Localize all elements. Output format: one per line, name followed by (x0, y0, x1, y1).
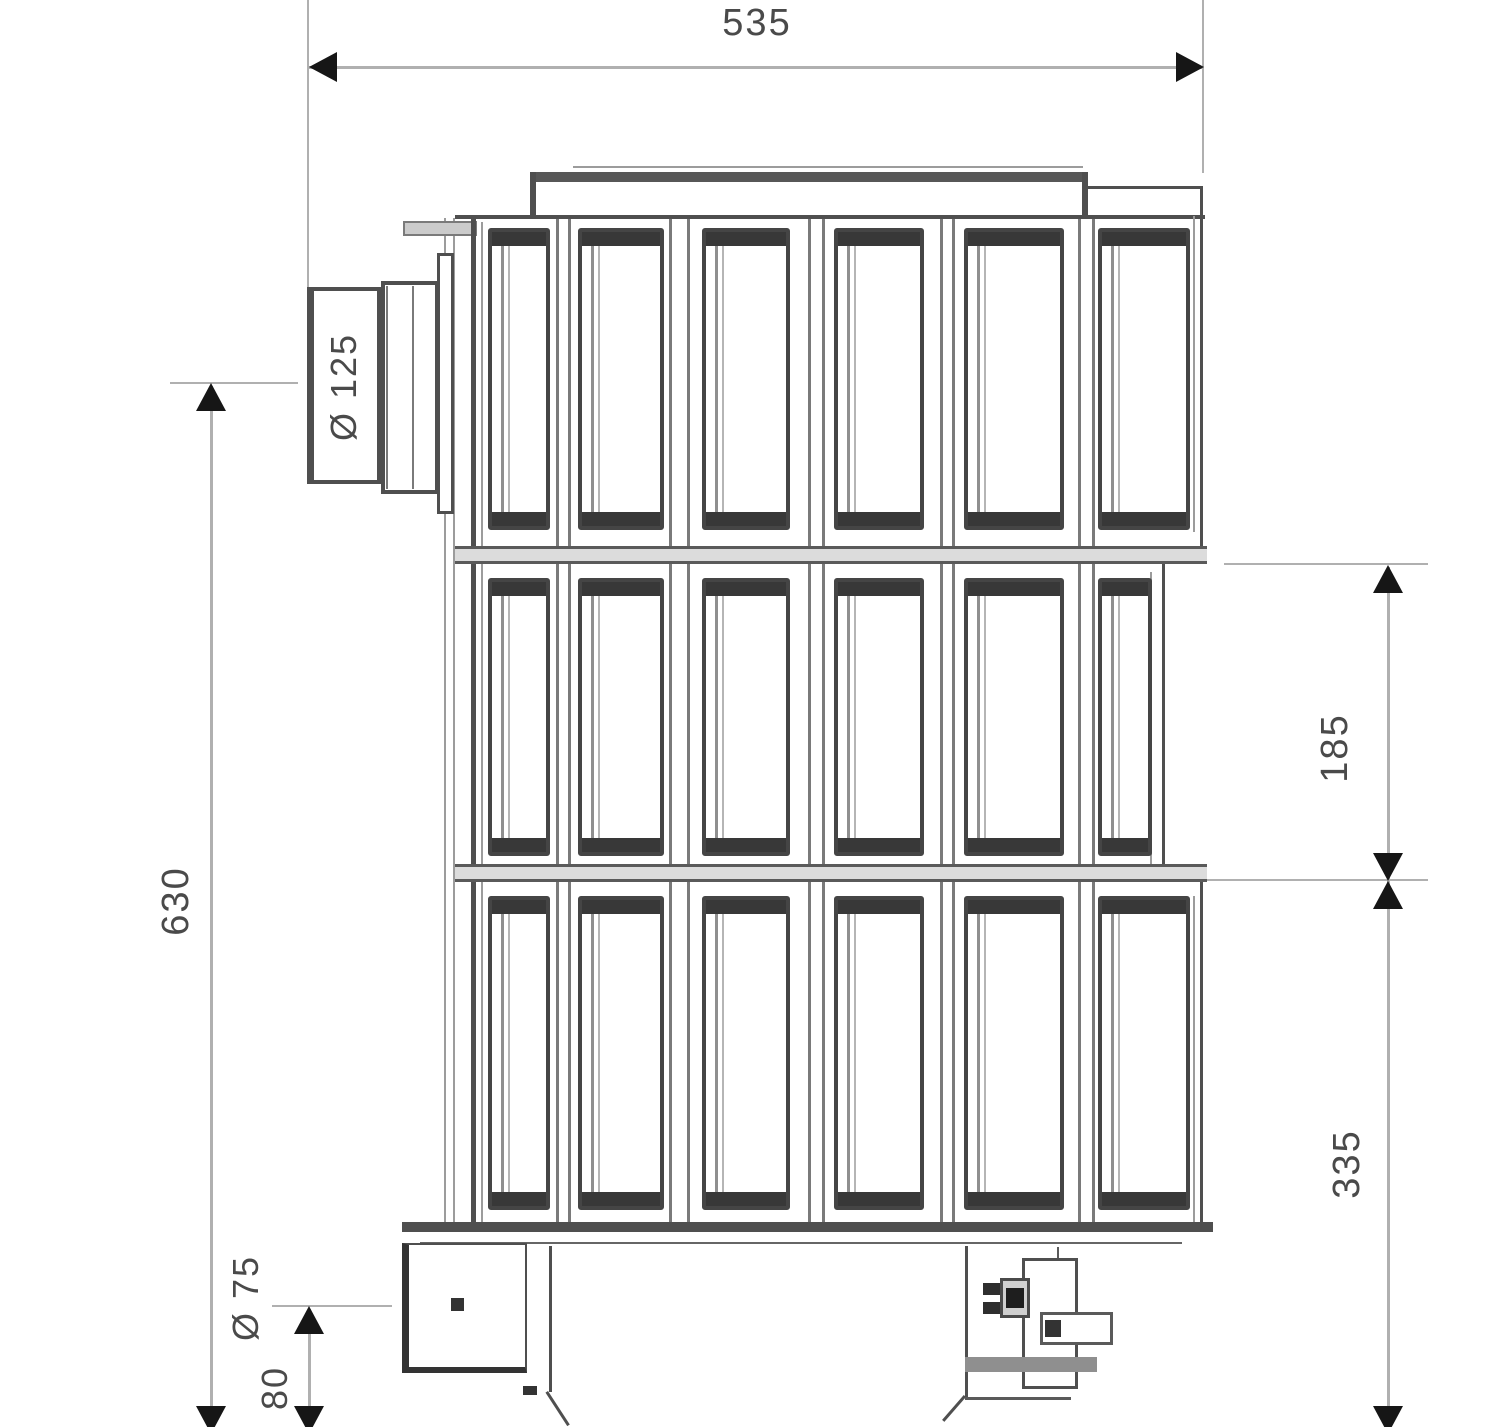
row-separator-flange-1 (455, 546, 1207, 564)
panel-cap (1102, 900, 1186, 914)
panel-rib-stripe (508, 596, 510, 838)
heat-exchanger-panel-r2c6 (1098, 578, 1152, 856)
panel-rib-stripe (854, 596, 856, 838)
panel-cap (492, 838, 546, 852)
column-divider-line (1078, 219, 1081, 1222)
column-divider-line (808, 219, 811, 1222)
panel-cap (1102, 582, 1148, 596)
heat-exchanger-panel-r3c2 (578, 896, 664, 1210)
panel-rib-stripe (598, 246, 600, 512)
panel-rib-stripe (847, 246, 850, 512)
panel-rib-stripe (1118, 914, 1120, 1192)
panel-cap (582, 838, 660, 852)
panel-cap (492, 582, 546, 596)
panel-cap (1102, 232, 1186, 246)
panel-rib-stripe (854, 914, 856, 1192)
panel-rib-stripe (977, 596, 980, 838)
heat-exchanger-panel-r1c6 (1098, 228, 1190, 530)
panel-cap (582, 900, 660, 914)
panel-cap (582, 582, 660, 596)
heat-exchanger-panel-r1c3 (702, 228, 790, 530)
panel-rib-stripe (984, 914, 986, 1192)
panel-rib-stripe (598, 914, 600, 1192)
panel-rib-stripe (508, 914, 510, 1192)
heat-exchanger-panel-r1c5 (964, 228, 1064, 530)
base-right-edge (965, 1246, 968, 1400)
panel-rib-stripe (1118, 246, 1120, 512)
panel-rib-stripe (591, 596, 594, 838)
panel-rib-stripe (977, 246, 980, 512)
heat-exchanger-panel-r3c6 (1098, 896, 1190, 1210)
column-divider-line (822, 219, 825, 1222)
heat-exchanger-panel-r2c2 (578, 578, 664, 856)
heat-exchanger-grid (0, 0, 1500, 1427)
column-divider-line (556, 219, 559, 1222)
valve-nub-top (983, 1283, 1001, 1295)
heat-exchanger-panel-r2c5 (964, 578, 1064, 856)
panel-rib-stripe (847, 914, 850, 1192)
bottom-plate (402, 1222, 1213, 1232)
panel-cap (706, 900, 786, 914)
panel-rib-stripe (501, 596, 504, 838)
panel-cap (838, 512, 920, 526)
panel-cap (1102, 838, 1148, 852)
drain-connection-box (402, 1243, 527, 1373)
heat-exchanger-panel-r1c2 (578, 228, 664, 530)
panel-rib-stripe (508, 246, 510, 512)
heat-exchanger-panel-r2c3 (702, 578, 790, 856)
panel-cap (838, 900, 920, 914)
heat-exchanger-panel-r3c3 (702, 896, 790, 1210)
heat-exchanger-panel-r2c1 (488, 578, 550, 856)
panel-cap (706, 838, 786, 852)
panel-rib-stripe (598, 596, 600, 838)
panel-cap (582, 512, 660, 526)
panel-rib-stripe (715, 246, 718, 512)
panel-cap (838, 838, 920, 852)
pipe-stub-nub (1045, 1320, 1061, 1337)
panel-cap (968, 582, 1060, 596)
panel-rib-stripe (501, 914, 504, 1192)
column-divider-line (687, 219, 690, 1222)
panel-cap (968, 512, 1060, 526)
panel-rib-stripe (722, 914, 724, 1192)
heat-exchanger-panel-r3c4 (834, 896, 924, 1210)
column-divider-line (568, 219, 571, 1222)
heat-exchanger-panel-r1c1 (488, 228, 550, 530)
column-divider-line (669, 219, 672, 1222)
heat-exchanger-panel-r2c4 (834, 578, 924, 856)
panel-cap (582, 1192, 660, 1206)
panel-cap (838, 582, 920, 596)
panel-rib-stripe (501, 246, 504, 512)
panel-rib-stripe (1111, 246, 1114, 512)
panel-cap (706, 1192, 786, 1206)
column-divider-line (940, 219, 943, 1222)
bottom-plate-thin-line (420, 1242, 1182, 1244)
panel-cap (1102, 512, 1186, 526)
panel-rib-stripe (722, 596, 724, 838)
panel-rib-stripe (984, 596, 986, 838)
panel-rib-stripe (984, 246, 986, 512)
panel-rib-stripe (722, 246, 724, 512)
panel-cap (706, 232, 786, 246)
panel-cap (838, 1192, 920, 1206)
panel-rib-stripe (847, 596, 850, 838)
valve-nub-bottom (983, 1302, 1001, 1314)
panel-rib-stripe (1111, 914, 1114, 1192)
base-cross-bar (965, 1357, 1097, 1372)
panel-cap (706, 512, 786, 526)
panel-cap (1102, 1192, 1186, 1206)
panel-rib-stripe (591, 914, 594, 1192)
panel-cap (706, 582, 786, 596)
panel-rib-stripe (1118, 596, 1120, 838)
panel-rib-stripe (1111, 596, 1114, 838)
base-left-edge (549, 1246, 552, 1392)
panel-cap (492, 900, 546, 914)
panel-cap (838, 232, 920, 246)
panel-cap (968, 838, 1060, 852)
panel-cap (968, 232, 1060, 246)
base-bottom-edge (965, 1397, 1071, 1400)
panel-rib-stripe (591, 246, 594, 512)
panel-rib-stripe (977, 914, 980, 1192)
technical-drawing-canvas: 535 630 185 335 80 Ø 75 Ø 125 (0, 0, 1500, 1427)
panel-cap (492, 512, 546, 526)
column-divider-line (952, 219, 955, 1222)
heat-exchanger-panel-r3c5 (964, 896, 1064, 1210)
heat-exchanger-panel-r3c1 (488, 896, 550, 1210)
panel-rib-stripe (715, 914, 718, 1192)
panel-cap (968, 1192, 1060, 1206)
panel-cap (492, 232, 546, 246)
drain-axis-mark (451, 1298, 464, 1311)
panel-cap (492, 1192, 546, 1206)
drain-box-foot (523, 1386, 537, 1395)
panel-cap (968, 900, 1060, 914)
drain-valve-core (1006, 1288, 1024, 1308)
panel-cap (582, 232, 660, 246)
column-divider-line (1092, 219, 1095, 1222)
panel-rib-stripe (715, 596, 718, 838)
heat-exchanger-panel-r1c4 (834, 228, 924, 530)
panel-rib-stripe (854, 246, 856, 512)
row-separator-flange-2 (455, 864, 1207, 882)
